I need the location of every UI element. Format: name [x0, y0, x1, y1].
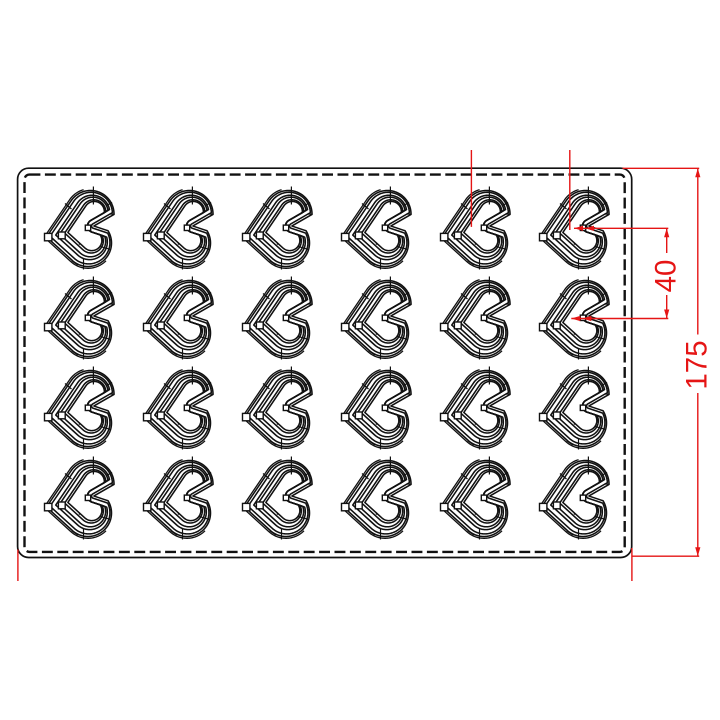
svg-text:40: 40 — [649, 260, 682, 293]
svg-text:175: 175 — [680, 340, 713, 389]
